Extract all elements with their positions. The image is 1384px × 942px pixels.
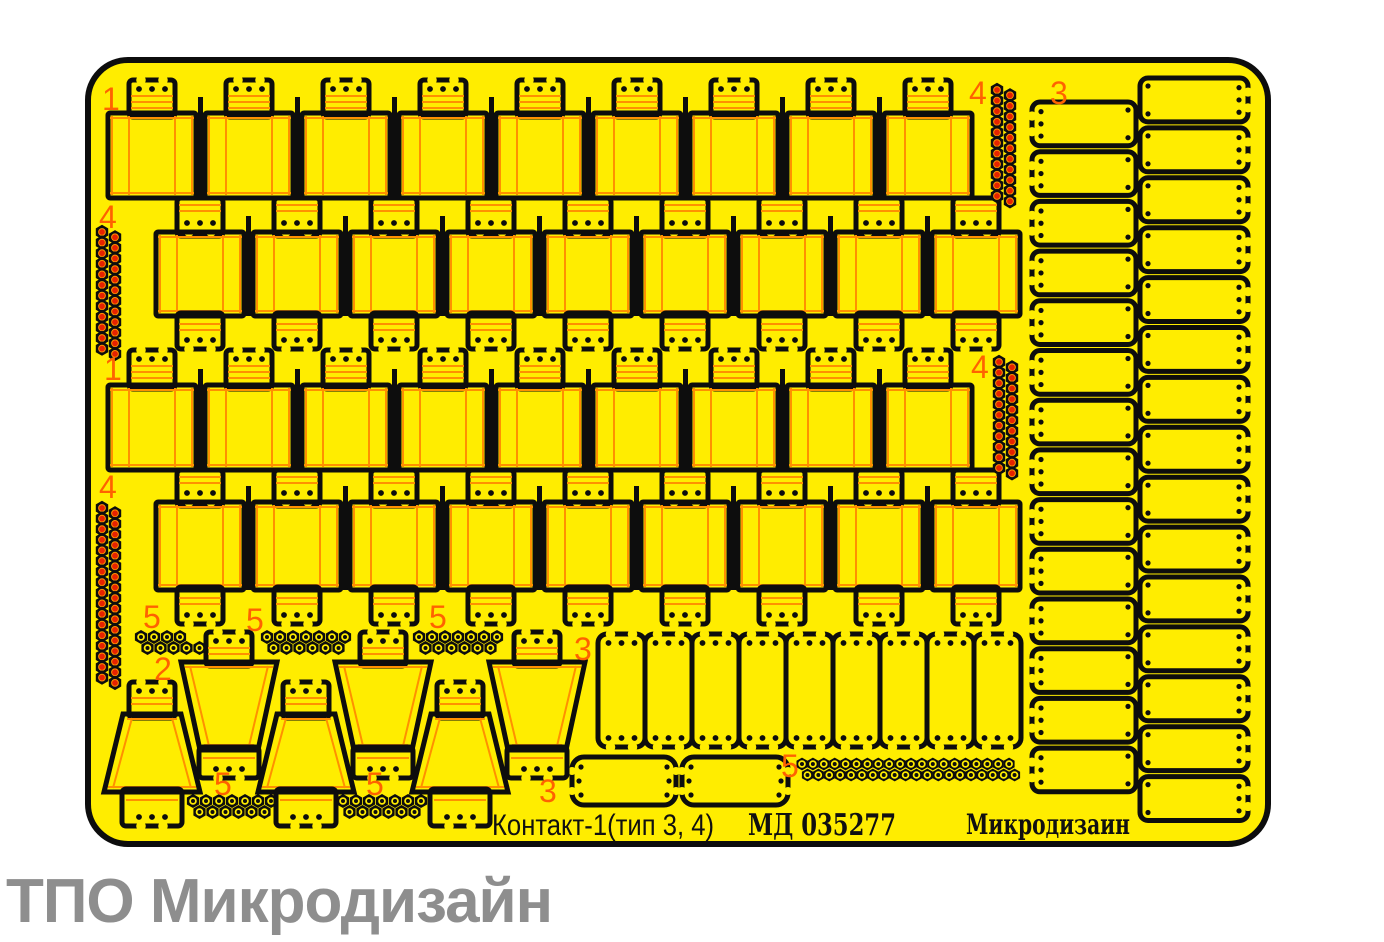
part-number-label: 5	[214, 766, 232, 802]
part-number-label: 4	[99, 469, 117, 505]
part-number-label: 5	[781, 748, 799, 784]
part-number-label: 1	[104, 351, 122, 387]
fret-sheet-svg: 1414434555235535Контакт-1(тип 3, 4)МД 03…	[0, 0, 1384, 942]
part-number-label: 4	[971, 349, 989, 385]
caption-product-code: МД 035277	[748, 808, 896, 843]
caption-product-name: Контакт-1(тип 3, 4)	[492, 809, 714, 842]
part-number-label: 4	[99, 199, 117, 235]
photoetch-fret-image: 1414434555235535Контакт-1(тип 3, 4)МД 03…	[0, 0, 1384, 942]
part-number-label: 4	[969, 75, 987, 111]
part-number-label: 5	[366, 766, 384, 802]
part-number-label: 5	[429, 599, 447, 635]
part-number-label: 5	[143, 599, 161, 635]
part-number-label: 3	[539, 773, 557, 809]
part-number-label: 5	[246, 602, 264, 638]
part-number-label: 1	[102, 81, 120, 117]
part-number-label: 3	[1050, 75, 1068, 111]
footer-brand-text: ТПО Микродизайн	[6, 866, 552, 937]
part-number-label: 2	[154, 651, 172, 687]
caption-brand-logo: Микродизаин	[966, 808, 1130, 841]
part-number-label: 3	[574, 631, 592, 667]
